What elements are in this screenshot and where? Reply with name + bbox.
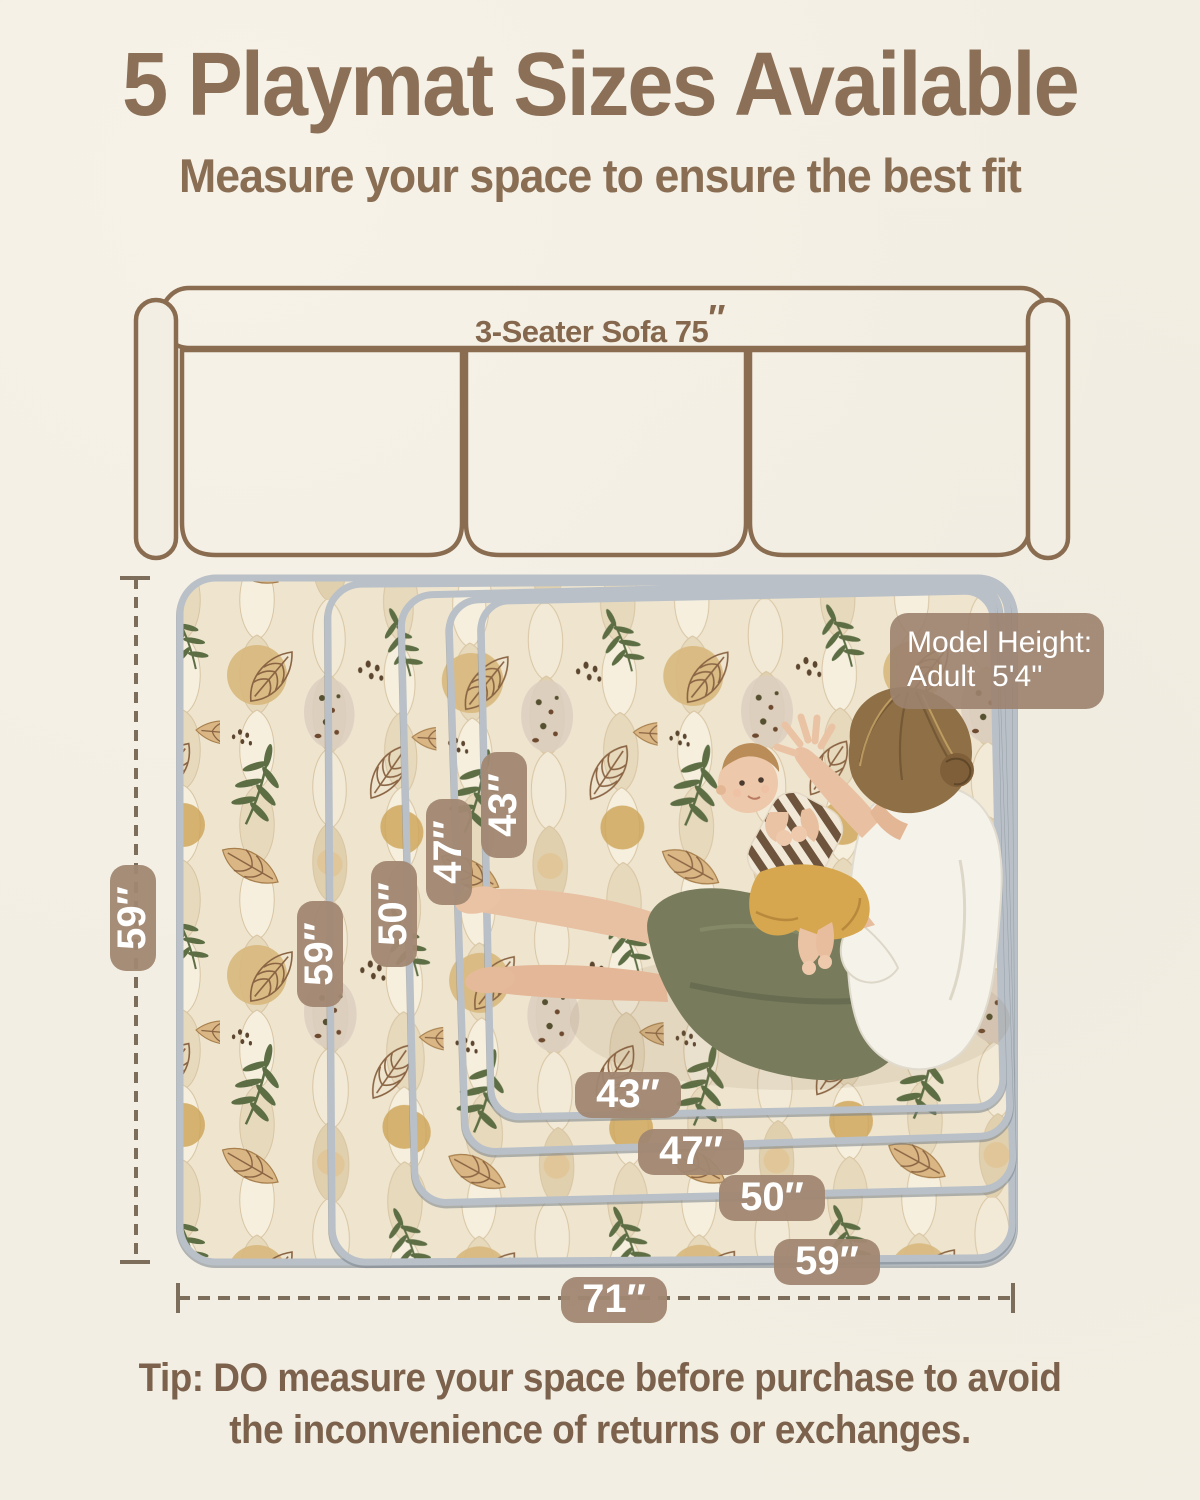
pill-mat-47-width: 47″: [638, 1129, 744, 1175]
model-height-label: Model Height:: [907, 626, 1104, 660]
page-subtitle: Measure your space to ensure the best fi…: [30, 148, 1170, 203]
sofa-seat-cushion: [750, 350, 1030, 555]
inch-mark: ″: [708, 297, 725, 338]
sofa-seat-cushion: [466, 350, 746, 555]
tip-text-line1: Tip: DO measure your space before purcha…: [48, 1356, 1152, 1401]
pill-mat-47-height: 47″: [426, 799, 472, 905]
dimension-tick: [120, 1260, 150, 1264]
model-height-value: Adult 5'4'': [907, 660, 1104, 694]
pill-mat-59-height: 59″: [297, 901, 343, 1007]
infographic-canvas: 5 Playmat Sizes Available Measure your s…: [0, 0, 1200, 1500]
pill-mat-59-width: 59″: [774, 1239, 880, 1285]
pill-mat-50-width: 50″: [719, 1175, 825, 1221]
pill-mat-43-height: 43″: [481, 752, 527, 858]
pill-mat-50-height: 50″: [371, 861, 417, 967]
dimension-tick: [120, 576, 150, 580]
sofa-label: 3-Seater Sofa 75″: [0, 297, 1200, 350]
model-height-badge: Model Height: Adult 5'4'': [890, 613, 1104, 709]
diagram-art: [0, 0, 1200, 1500]
pill-total-width: 71″: [561, 1277, 667, 1323]
pill-total-height: 59″: [110, 865, 156, 971]
dimension-tick: [1011, 1283, 1015, 1313]
sofa-seat-cushion: [182, 350, 462, 555]
pill-mat-43-width: 43″: [575, 1072, 681, 1118]
tip-text-line2: the inconvenience of returns or exchange…: [48, 1408, 1152, 1453]
page-title: 5 Playmat Sizes Available: [48, 34, 1152, 137]
dimension-tick: [176, 1283, 180, 1313]
sofa-label-text: 3-Seater Sofa 75: [475, 314, 708, 349]
